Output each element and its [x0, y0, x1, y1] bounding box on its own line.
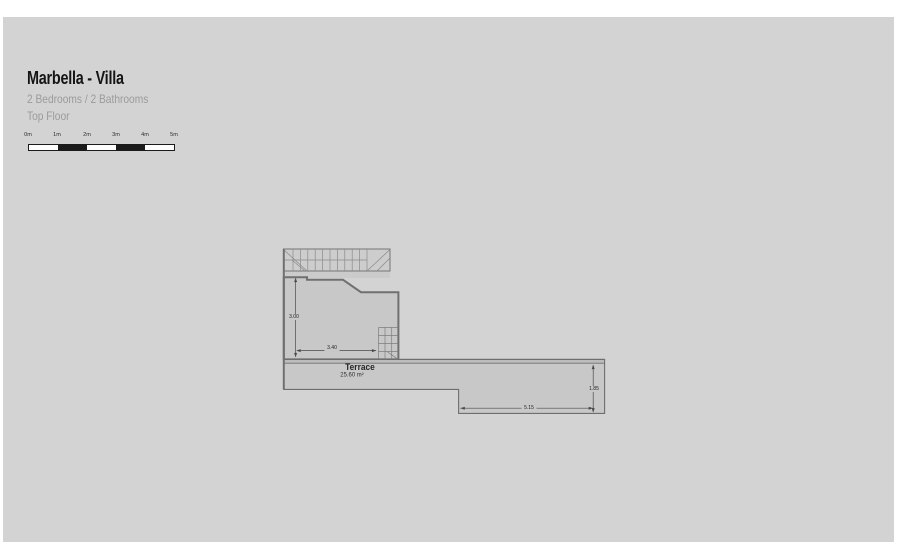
terrace-top-wall — [285, 360, 605, 363]
terrace-outline — [284, 359, 605, 413]
dim-terrace-width: 5.15 — [521, 405, 536, 411]
dim-room-width: 3.40 — [325, 345, 340, 351]
staircase — [284, 249, 391, 271]
dim-room-height: 3.00 — [287, 314, 302, 320]
floor-plan-drawing — [0, 0, 900, 548]
dim-terrace-height: 1.85 — [586, 386, 601, 392]
room-area-label: 25.60 m² — [335, 372, 367, 378]
